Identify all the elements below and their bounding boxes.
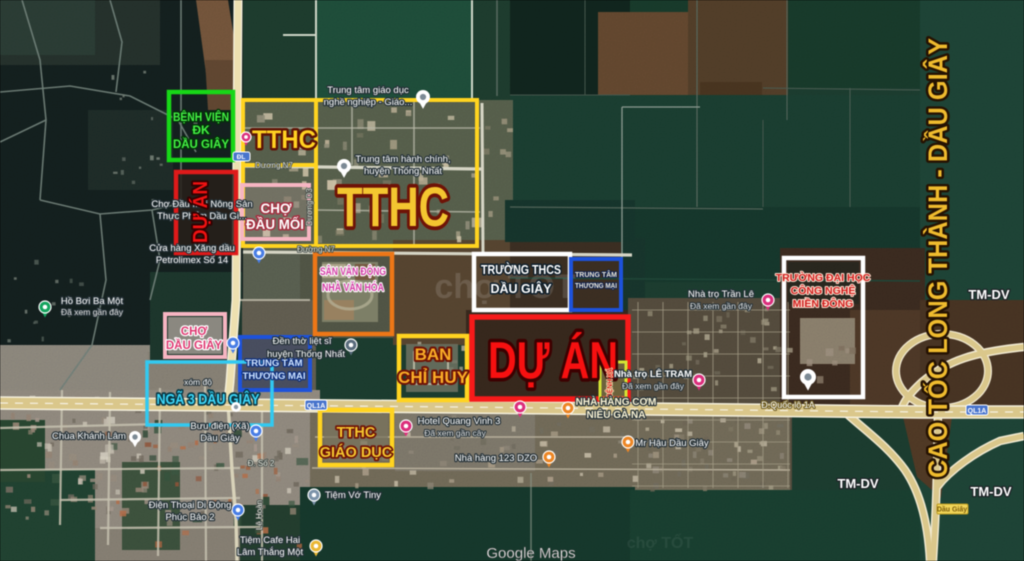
svg-text:Đã xem gần đây: Đã xem gần đây	[690, 301, 753, 311]
svg-text:ĐL: ĐL	[237, 154, 246, 161]
svg-text:DẦU GIÂY: DẦU GIÂY	[173, 136, 229, 151]
svg-text:Trung tâm giáo dục: Trung tâm giáo dục	[327, 85, 409, 96]
svg-text:Bưu điện (Xã): Bưu điện (Xã)	[190, 421, 249, 432]
svg-text:Dương N7: Dương N7	[255, 161, 293, 170]
svg-text:Mr Hậu Dầu Giây: Mr Hậu Dầu Giây	[635, 438, 709, 449]
svg-text:NHÀ HÀNG CƠM: NHÀ HÀNG CƠM	[576, 395, 657, 408]
svg-text:TM-DV: TM-DV	[837, 476, 878, 491]
svg-text:Nhà trọ Trần Lê: Nhà trọ Trần Lê	[688, 289, 754, 300]
svg-text:BAN: BAN	[415, 345, 452, 364]
svg-text:Hồ Bơi Ba Một: Hồ Bơi Ba Một	[61, 296, 124, 307]
svg-text:Trung tâm hành chính,: Trung tâm hành chính,	[355, 154, 450, 165]
svg-text:DỰ ÁN: DỰ ÁN	[189, 181, 212, 243]
svg-text:Tiệm Cafe Hai: Tiệm Cafe Hai	[240, 535, 300, 546]
svg-text:THƯƠNG MẠI: THƯƠNG MẠI	[243, 371, 306, 382]
svg-text:Dầu Giây: Dầu Giây	[200, 433, 240, 444]
svg-text:ĐẦU MỐI: ĐẦU MỐI	[246, 217, 304, 232]
svg-text:TTHC: TTHC	[337, 425, 376, 441]
svg-text:Đã xem gần cây: Đã xem gần cây	[424, 428, 486, 438]
svg-text:Dầu Giây: Dầu Giây	[937, 505, 967, 514]
svg-text:CHỢ: CHỢ	[260, 201, 291, 216]
svg-text:CAO TỐC LONG THÀNH - DẦU GIÂY: CAO TỐC LONG THÀNH - DẦU GIÂY	[923, 38, 953, 478]
svg-text:CHỈ HUY: CHỈ HUY	[398, 368, 469, 387]
svg-text:Nhà hàng 123 DZO: Nhà hàng 123 DZO	[455, 453, 537, 464]
svg-text:Đ. Số 2: Đ. Số 2	[248, 459, 275, 468]
svg-text:CHỢ: CHỢ	[181, 326, 208, 338]
svg-text:huyện Thống Nhất: huyện Thống Nhất	[267, 349, 345, 360]
svg-text:Nhà trọ LÊ TRAM: Nhà trọ LÊ TRAM	[614, 368, 692, 380]
svg-text:Đền thờ liệt sĩ: Đền thờ liệt sĩ	[272, 336, 331, 347]
svg-text:nghề nghiệp - Giáo...: nghề nghiệp - Giáo...	[324, 97, 413, 108]
svg-text:Tiệm Vớ Tiny: Tiệm Vớ Tiny	[325, 490, 381, 501]
svg-text:NIÊU GÀ NA: NIÊU GÀ NA	[587, 408, 646, 421]
svg-text:Google Maps: Google Maps	[486, 545, 575, 561]
svg-text:QL1A: QL1A	[968, 408, 987, 415]
svg-text:CÔNG NGHỆ: CÔNG NGHỆ	[791, 284, 856, 297]
svg-text:Đã xem gần đây: Đã xem gần đây	[61, 307, 124, 317]
svg-text:GIÁO DỤC: GIÁO DỤC	[320, 444, 393, 461]
svg-text:QL1A: QL1A	[307, 403, 326, 410]
svg-text:Chùa Khánh Lâm: Chùa Khánh Lâm	[52, 431, 126, 442]
svg-text:SÂN VẬN ĐỘNG: SÂN VẬN ĐỘNG	[320, 265, 386, 278]
svg-text:TRƯỜNG ĐẠI HỌC: TRƯỜNG ĐẠI HỌC	[776, 271, 871, 284]
svg-text:TM-DV: TM-DV	[968, 287, 1009, 302]
svg-text:TM-DV: TM-DV	[970, 484, 1011, 499]
svg-text:Phúc Bảo 2: Phúc Bảo 2	[165, 512, 214, 523]
svg-text:Cửa hàng Xăng dầu: Cửa hàng Xăng dầu	[149, 243, 235, 254]
svg-text:TTHC: TTHC	[337, 175, 449, 238]
svg-text:NGÃ 3 DẦU GIÂY: NGÃ 3 DẦU GIÂY	[157, 390, 260, 408]
svg-text:xóm độ: xóm độ	[184, 377, 212, 387]
svg-text:Lâm Thắng Một: Lâm Thắng Một	[237, 547, 304, 558]
svg-text:DẦU GIÂY: DẦU GIÂY	[490, 281, 552, 296]
svg-text:chợ TỐT: chợ TỐT	[627, 532, 694, 552]
svg-text:Đường N7: Đường N7	[297, 245, 335, 254]
svg-text:DẦU GIÂY: DẦU GIÂY	[166, 339, 223, 352]
svg-text:Hotel Quang Vinh 3: Hotel Quang Vinh 3	[418, 416, 501, 427]
svg-text:TTHC: TTHC	[252, 126, 316, 154]
svg-text:Petrolimex Số 14: Petrolimex Số 14	[156, 255, 228, 266]
svg-text:NHÀ VĂN HÓA: NHÀ VĂN HÓA	[322, 281, 384, 294]
svg-text:Đã xem gần đây: Đã xem gần đây	[622, 381, 685, 391]
svg-text:ĐK: ĐK	[192, 123, 210, 137]
svg-text:Lê Hoàn: Lê Hoàn	[255, 500, 264, 530]
svg-text:DỰ ÁN: DỰ ÁN	[488, 332, 618, 390]
svg-text:BỆNH XÁ: BỆNH XÁ	[605, 367, 614, 398]
svg-text:BỆNH VIỆN: BỆNH VIỆN	[173, 109, 229, 124]
svg-text:huyện Thống Nhất: huyện Thống Nhất	[364, 166, 442, 177]
svg-text:TRUNG TÂM: TRUNG TÂM	[575, 270, 617, 279]
svg-text:TRƯỜNG THCS: TRƯỜNG THCS	[481, 262, 561, 277]
svg-text:Điện Thoại Di Động: Điện Thoại Di Động	[149, 500, 232, 511]
svg-text:THƯƠNG MẠI: THƯƠNG MẠI	[575, 281, 617, 290]
svg-text:Đ.Quốc lộ 1A: Đ.Quốc lộ 1A	[761, 400, 815, 410]
svg-text:MIỀN ĐÔNG: MIỀN ĐÔNG	[793, 297, 854, 310]
svg-text:Dương D3: Dương D3	[305, 188, 314, 226]
